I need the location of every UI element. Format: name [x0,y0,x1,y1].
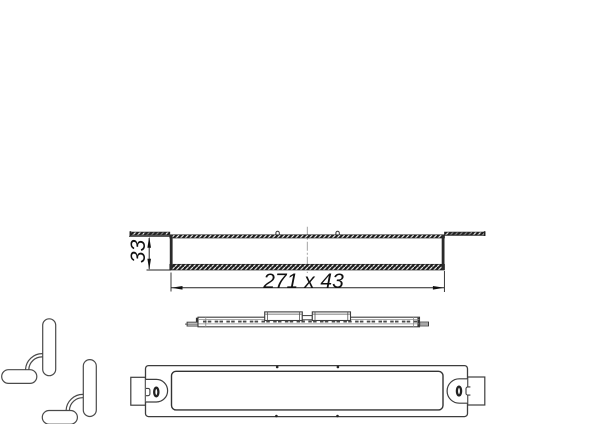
svg-text:33: 33 [127,239,150,263]
svg-text:271 x 43: 271 x 43 [262,270,344,293]
